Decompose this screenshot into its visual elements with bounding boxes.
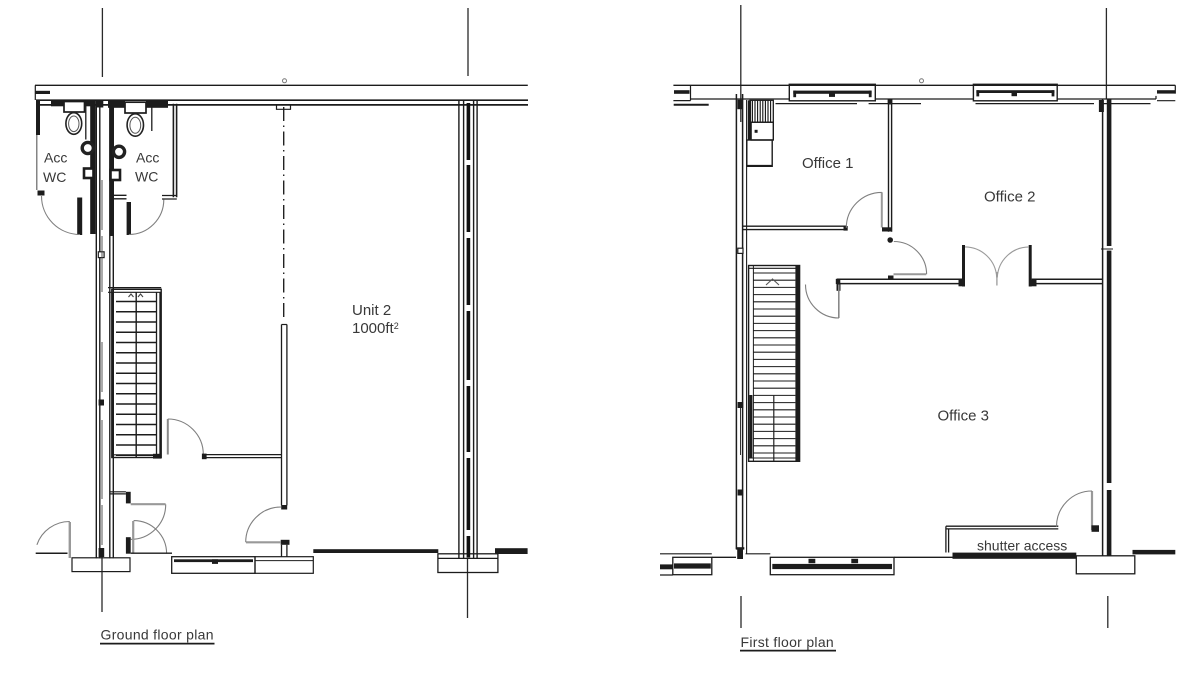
svg-text:First floor plan: First floor plan	[741, 634, 835, 650]
svg-text:Office 1: Office 1	[802, 155, 853, 172]
svg-text:Acc: Acc	[136, 150, 159, 166]
svg-text:1000ft2: 1000ft2	[352, 320, 399, 337]
svg-text:Unit 2: Unit 2	[352, 302, 391, 319]
svg-text:Office 2: Office 2	[984, 189, 1035, 206]
svg-text:Acc: Acc	[44, 150, 67, 166]
svg-text:WC: WC	[43, 169, 66, 185]
svg-text:Ground floor plan: Ground floor plan	[101, 627, 214, 643]
svg-text:WC: WC	[135, 169, 158, 185]
svg-text:shutter access: shutter access	[977, 538, 1067, 554]
svg-text:Office 3: Office 3	[938, 408, 989, 425]
